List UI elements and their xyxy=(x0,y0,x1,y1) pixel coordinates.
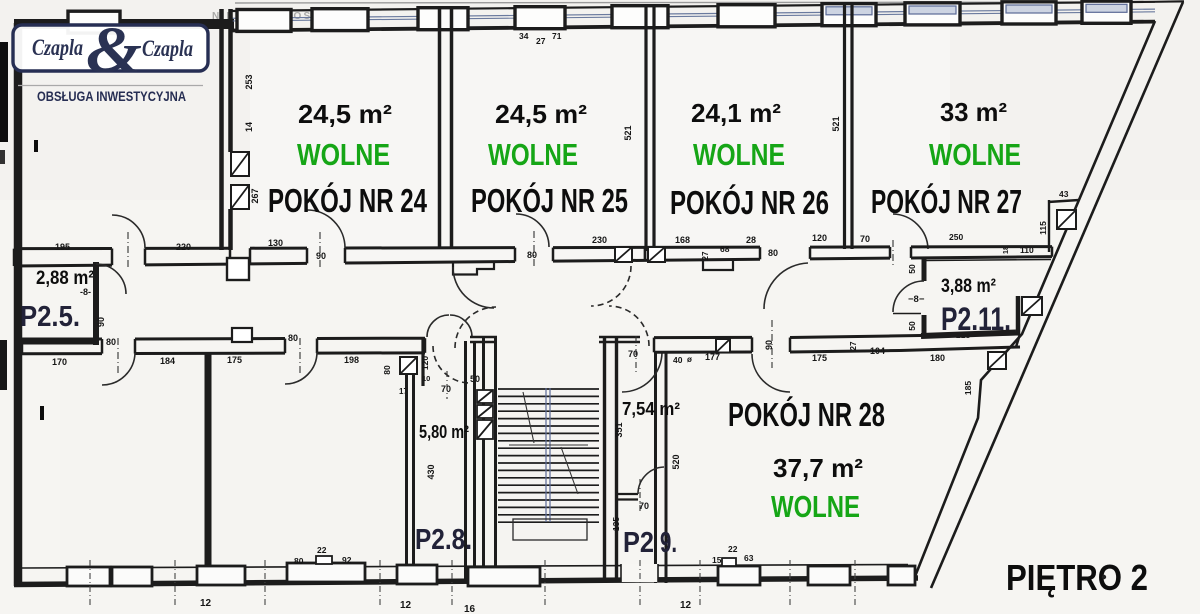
svg-text:OBSŁUGA INWESTYCYJNA: OBSŁUGA INWESTYCYJNA xyxy=(37,89,186,104)
svg-text:351: 351 xyxy=(614,422,624,437)
svg-text:63: 63 xyxy=(744,553,754,563)
svg-text:92: 92 xyxy=(342,555,352,565)
svg-text:180: 180 xyxy=(930,353,945,363)
svg-text:80: 80 xyxy=(527,250,537,260)
svg-text:12: 12 xyxy=(200,598,212,609)
svg-text:80: 80 xyxy=(288,333,298,343)
svg-text:250: 250 xyxy=(949,232,963,242)
svg-text:7,54 m²: 7,54 m² xyxy=(622,399,680,419)
svg-text:120: 120 xyxy=(420,356,430,370)
svg-text:230: 230 xyxy=(592,235,607,245)
svg-text:14: 14 xyxy=(244,122,254,132)
svg-text:135: 135 xyxy=(611,517,621,531)
svg-text:P2: P2 xyxy=(623,527,654,559)
svg-text:24,1 m²: 24,1 m² xyxy=(691,98,781,128)
svg-text:267: 267 xyxy=(250,188,260,203)
svg-text:-8-: -8- xyxy=(80,287,91,297)
svg-text:80: 80 xyxy=(768,248,778,258)
svg-text:POKÓJ NR 24: POKÓJ NR 24 xyxy=(268,182,427,219)
svg-text:POKÓJ NR 25: POKÓJ NR 25 xyxy=(471,182,628,219)
svg-text:43: 43 xyxy=(1059,189,1069,199)
svg-text:185: 185 xyxy=(963,381,973,395)
svg-text:POKÓJ NR 28: POKÓJ NR 28 xyxy=(728,396,885,433)
svg-text:P2.5.: P2.5. xyxy=(20,301,80,333)
svg-text:9.: 9. xyxy=(660,527,677,559)
svg-text:184: 184 xyxy=(160,356,175,366)
svg-text:27: 27 xyxy=(849,341,858,350)
svg-text:ø: ø xyxy=(687,355,692,364)
svg-text:40: 40 xyxy=(673,355,683,365)
svg-text:521: 521 xyxy=(623,125,633,140)
svg-text:3,88 m²: 3,88 m² xyxy=(941,276,996,297)
svg-text:15: 15 xyxy=(712,555,722,565)
svg-text:220: 220 xyxy=(176,242,191,252)
svg-text:5,80 m²: 5,80 m² xyxy=(419,422,469,442)
svg-text:253: 253 xyxy=(244,74,254,89)
svg-text:130: 130 xyxy=(268,238,283,248)
svg-text:80: 80 xyxy=(382,365,392,375)
svg-text:34: 34 xyxy=(519,31,529,41)
svg-text:Czapla: Czapla xyxy=(142,36,193,61)
svg-text:−8−: −8− xyxy=(908,294,925,305)
svg-text:POKÓJ NR 26: POKÓJ NR 26 xyxy=(670,184,829,221)
svg-text:50: 50 xyxy=(907,321,917,331)
svg-text:71: 71 xyxy=(552,31,562,41)
svg-text:24,5 m²: 24,5 m² xyxy=(495,99,587,129)
svg-text:Czapla: Czapla xyxy=(32,35,83,60)
svg-text:80: 80 xyxy=(106,337,116,347)
svg-text:70: 70 xyxy=(441,384,451,394)
svg-text:90: 90 xyxy=(316,251,326,261)
svg-text:198: 198 xyxy=(344,355,359,365)
svg-text:WOLNE: WOLNE xyxy=(929,138,1021,172)
svg-text:22: 22 xyxy=(317,545,327,555)
svg-text:27: 27 xyxy=(536,36,546,46)
svg-text:68: 68 xyxy=(720,244,730,254)
svg-text:80: 80 xyxy=(294,556,304,566)
svg-text:12: 12 xyxy=(400,600,412,611)
svg-text:2,88 m²: 2,88 m² xyxy=(36,268,94,289)
svg-text:33 m²: 33 m² xyxy=(940,97,1007,127)
svg-text:170: 170 xyxy=(52,357,67,367)
svg-text:70: 70 xyxy=(860,234,870,244)
svg-text:90: 90 xyxy=(764,340,774,350)
svg-text:27: 27 xyxy=(701,251,710,260)
svg-text:104: 104 xyxy=(870,346,885,356)
svg-text:POKÓJ NR 27: POKÓJ NR 27 xyxy=(871,183,1022,220)
svg-text:24,5 m²: 24,5 m² xyxy=(298,99,392,129)
svg-text:430: 430 xyxy=(426,464,436,479)
svg-text:WOLNE: WOLNE xyxy=(771,490,860,524)
svg-text:168: 168 xyxy=(675,235,690,245)
svg-text:175: 175 xyxy=(227,355,242,365)
svg-text:10: 10 xyxy=(422,374,430,383)
svg-text:WOLNE: WOLNE xyxy=(297,138,390,172)
svg-text:520: 520 xyxy=(671,454,681,469)
svg-text:28: 28 xyxy=(746,235,756,245)
svg-text:PIĘTRO 2: PIĘTRO 2 xyxy=(1006,557,1148,598)
svg-text:37,7 m²: 37,7 m² xyxy=(773,453,863,483)
svg-text:WOLNE: WOLNE xyxy=(488,138,578,172)
svg-text:521: 521 xyxy=(831,116,841,131)
svg-text:P2.8.: P2.8. xyxy=(415,524,472,556)
svg-text:120: 120 xyxy=(812,233,827,243)
svg-text:177: 177 xyxy=(705,352,720,362)
svg-text:WOLNE: WOLNE xyxy=(693,138,785,172)
svg-text:16: 16 xyxy=(464,604,476,614)
svg-text:175: 175 xyxy=(812,353,827,363)
svg-text:50: 50 xyxy=(907,264,917,274)
svg-text:&: & xyxy=(86,14,142,87)
svg-text:12: 12 xyxy=(680,600,692,611)
svg-text:22: 22 xyxy=(728,544,738,554)
svg-text:115: 115 xyxy=(1038,221,1048,235)
svg-text:90: 90 xyxy=(96,317,106,327)
svg-text:195: 195 xyxy=(55,242,70,252)
